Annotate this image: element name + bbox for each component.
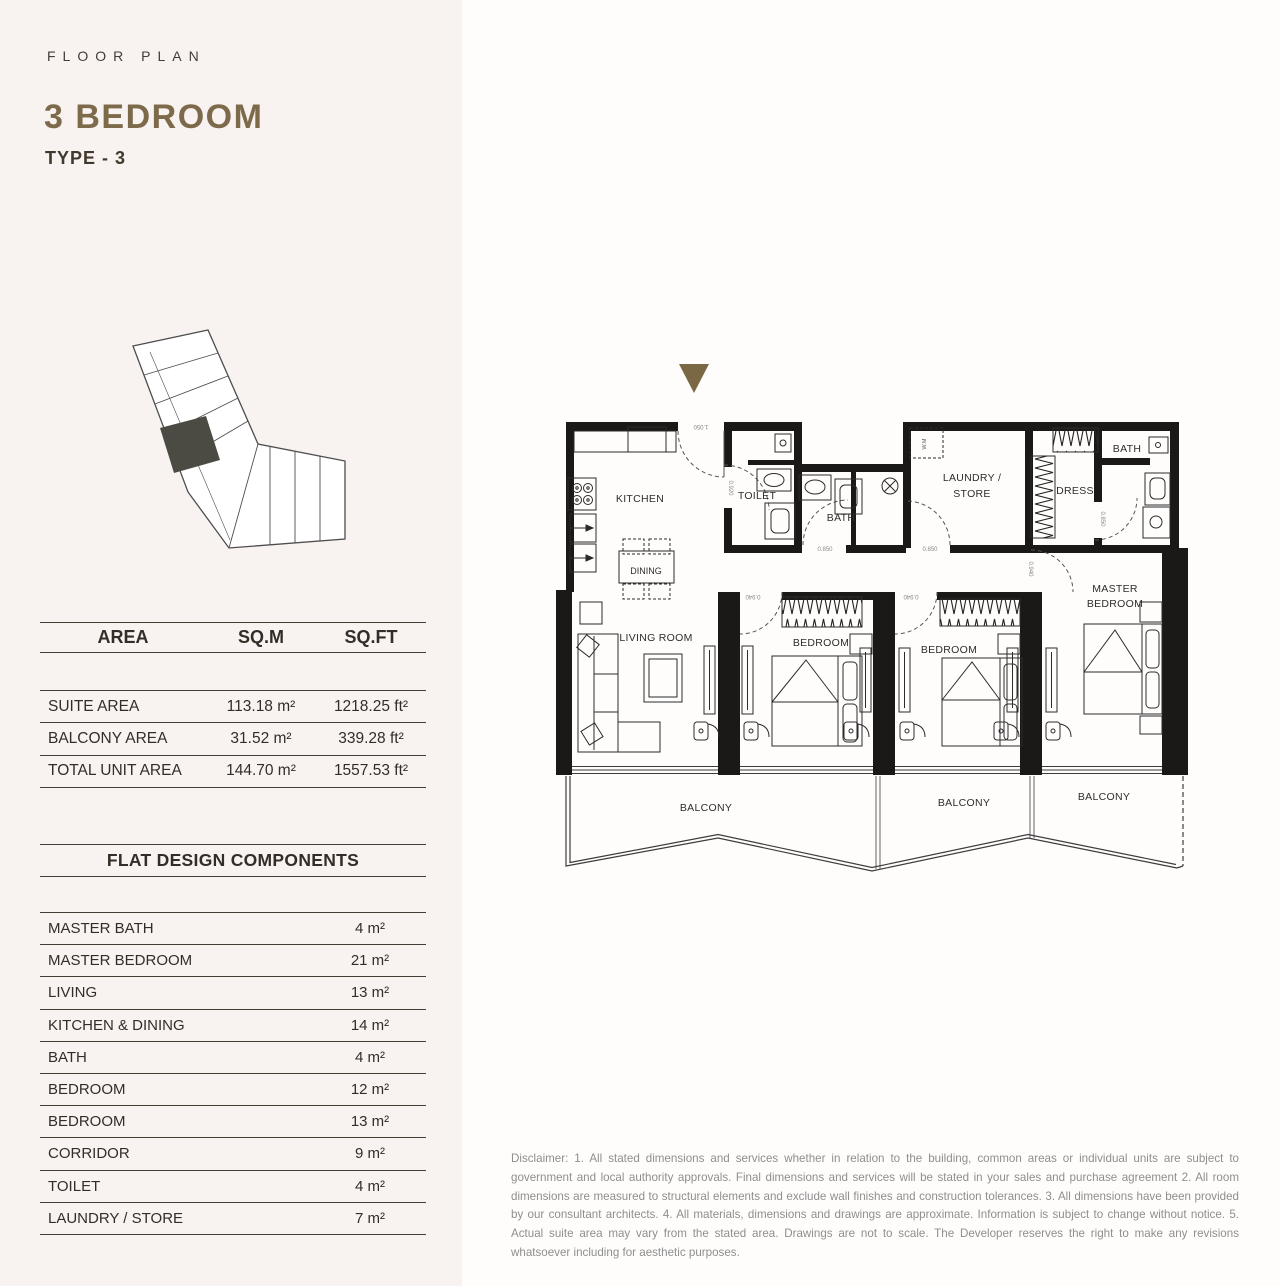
sqm-col-header: SQ.M	[206, 627, 316, 648]
area-table-header: AREA SQ.M SQ.FT	[40, 622, 426, 653]
components-table-row: MASTER BATH 4 m²	[40, 913, 426, 945]
wardrobe-icon	[782, 597, 862, 627]
area-col-header: AREA	[40, 627, 206, 648]
area-row-sqft: 1218.25 ft²	[316, 698, 426, 716]
component-label: MASTER BEDROOM	[40, 952, 314, 969]
dim-entry: 1.050	[693, 423, 709, 429]
dining-label: DINING	[630, 566, 662, 576]
dim-master-bath-door: 0.850	[1099, 511, 1105, 527]
component-label: BATH	[40, 1049, 314, 1066]
components-table-title: FLAT DESIGN COMPONENTS	[40, 844, 426, 877]
building-keyplan	[0, 0, 420, 600]
area-row-sqm: 144.70 m²	[206, 762, 316, 780]
area-table-body: SUITE AREA 113.18 m² 1218.25 ft² BALCONY…	[40, 690, 426, 788]
disclaimer-text: Disclaimer: 1. All stated dimensions and…	[511, 1150, 1239, 1263]
components-table-body: MASTER BATH 4 m² MASTER BEDROOM 21 m² LI…	[40, 912, 426, 1235]
component-value: 9 m²	[314, 1145, 426, 1162]
component-value: 13 m²	[314, 984, 426, 1001]
kitchen-label: KITCHEN	[616, 493, 664, 505]
living-room-label: LIVING ROOM	[619, 632, 692, 644]
laundry-store-label: STORE	[953, 488, 990, 500]
area-row-label: SUITE AREA	[40, 698, 206, 716]
area-row-sqm: 31.52 m²	[206, 730, 316, 748]
bed-icon	[1084, 602, 1162, 734]
component-value: 4 m²	[314, 1049, 426, 1066]
component-label: LAUNDRY / STORE	[40, 1210, 314, 1227]
component-label: LIVING	[40, 984, 314, 1001]
toilet-label: TOILET	[738, 490, 777, 502]
components-table-row: CORRIDOR 9 m²	[40, 1138, 426, 1170]
master-bedroom-label: MASTER	[1092, 583, 1138, 595]
component-value: 4 m²	[314, 920, 426, 937]
components-table-row: TOILET 4 m²	[40, 1171, 426, 1203]
dim-bedroom2-door: 0.940	[903, 593, 919, 599]
component-value: 7 m²	[314, 1210, 426, 1227]
floor-plan-drawing: KITCHEN DINING LIVING ROOM TOILET BATH L…	[540, 350, 1220, 890]
area-table: AREA SQ.M SQ.FT SUITE AREA 113.18 m² 121…	[40, 622, 426, 788]
component-value: 13 m²	[314, 1113, 426, 1130]
dim-bedroom1-door: 0.940	[745, 593, 761, 599]
component-label: BEDROOM	[40, 1113, 314, 1130]
shower-icon	[775, 434, 791, 452]
balcony-label: BALCONY	[680, 802, 732, 814]
wardrobe-icon	[940, 599, 1020, 626]
washing-machine-label: W.M	[922, 438, 928, 449]
side-table	[580, 602, 602, 624]
toilet-fixtures	[757, 434, 795, 539]
balcony-label: BALCONY	[938, 797, 990, 809]
components-table-row: LIVING 13 m²	[40, 977, 426, 1009]
dim-master-door: 0.940	[1027, 561, 1033, 577]
components-table: FLAT DESIGN COMPONENTS MASTER BATH 4 m² …	[40, 844, 426, 1235]
master-bath-label: BATH	[1113, 443, 1141, 455]
sqft-col-header: SQ.FT	[316, 627, 426, 648]
sofa-icon	[577, 634, 660, 752]
area-table-row: BALCONY AREA 31.52 m² 339.28 ft²	[40, 723, 426, 755]
dress-label: DRESS	[1056, 485, 1094, 497]
area-table-row: TOTAL UNIT AREA 144.70 m² 1557.53 ft²	[40, 756, 426, 788]
components-table-row: BEDROOM 12 m²	[40, 1074, 426, 1106]
dim-bath-door: 0.850	[817, 547, 833, 553]
components-table-row: BATH 4 m²	[40, 1042, 426, 1074]
area-row-sqft: 1557.53 ft²	[316, 762, 426, 780]
wardrobe-icon	[1031, 428, 1098, 538]
component-label: CORRIDOR	[40, 1145, 314, 1162]
area-row-sqm: 113.18 m²	[206, 698, 316, 716]
area-table-row: SUITE AREA 113.18 m² 1218.25 ft²	[40, 691, 426, 723]
bedroom-label: BEDROOM	[921, 644, 977, 656]
component-label: MASTER BATH	[40, 920, 314, 937]
components-table-row: MASTER BEDROOM 21 m²	[40, 945, 426, 977]
area-row-label: BALCONY AREA	[40, 730, 206, 748]
components-table-row: LAUNDRY / STORE 7 m²	[40, 1203, 426, 1235]
component-value: 21 m²	[314, 952, 426, 969]
components-table-row: BEDROOM 13 m²	[40, 1106, 426, 1138]
plan-furniture	[568, 427, 1170, 752]
coffee-table	[644, 654, 682, 702]
sink-icon	[799, 475, 831, 500]
entry-marker-icon	[679, 364, 709, 393]
sink-icon	[1149, 437, 1168, 453]
balcony-label: BALCONY	[1078, 791, 1130, 803]
dim-toilet: 0.920	[727, 480, 733, 496]
component-label: BEDROOM	[40, 1081, 314, 1098]
sink-icon	[757, 469, 791, 491]
component-value: 12 m²	[314, 1081, 426, 1098]
wc-icon	[765, 503, 795, 539]
component-value: 14 m²	[314, 1017, 426, 1034]
bath-label: BATH	[827, 512, 855, 524]
bed-icon	[772, 634, 872, 746]
master-bath-fixtures	[1143, 437, 1170, 538]
wc-icon	[835, 479, 862, 514]
component-label: KITCHEN & DINING	[40, 1017, 314, 1034]
component-label: TOILET	[40, 1178, 314, 1195]
vanity-icon	[1143, 507, 1170, 538]
components-table-row: KITCHEN & DINING 14 m²	[40, 1010, 426, 1042]
component-value: 4 m²	[314, 1178, 426, 1195]
bath-fixtures	[799, 475, 898, 514]
dim-laundry-door: 0.850	[922, 547, 938, 553]
master-bedroom-label: BEDROOM	[1087, 598, 1143, 610]
area-row-label: TOTAL UNIT AREA	[40, 762, 206, 780]
laundry-store-label: LAUNDRY /	[943, 472, 1001, 484]
bedroom-label: BEDROOM	[793, 637, 849, 649]
area-row-sqft: 339.28 ft²	[316, 730, 426, 748]
